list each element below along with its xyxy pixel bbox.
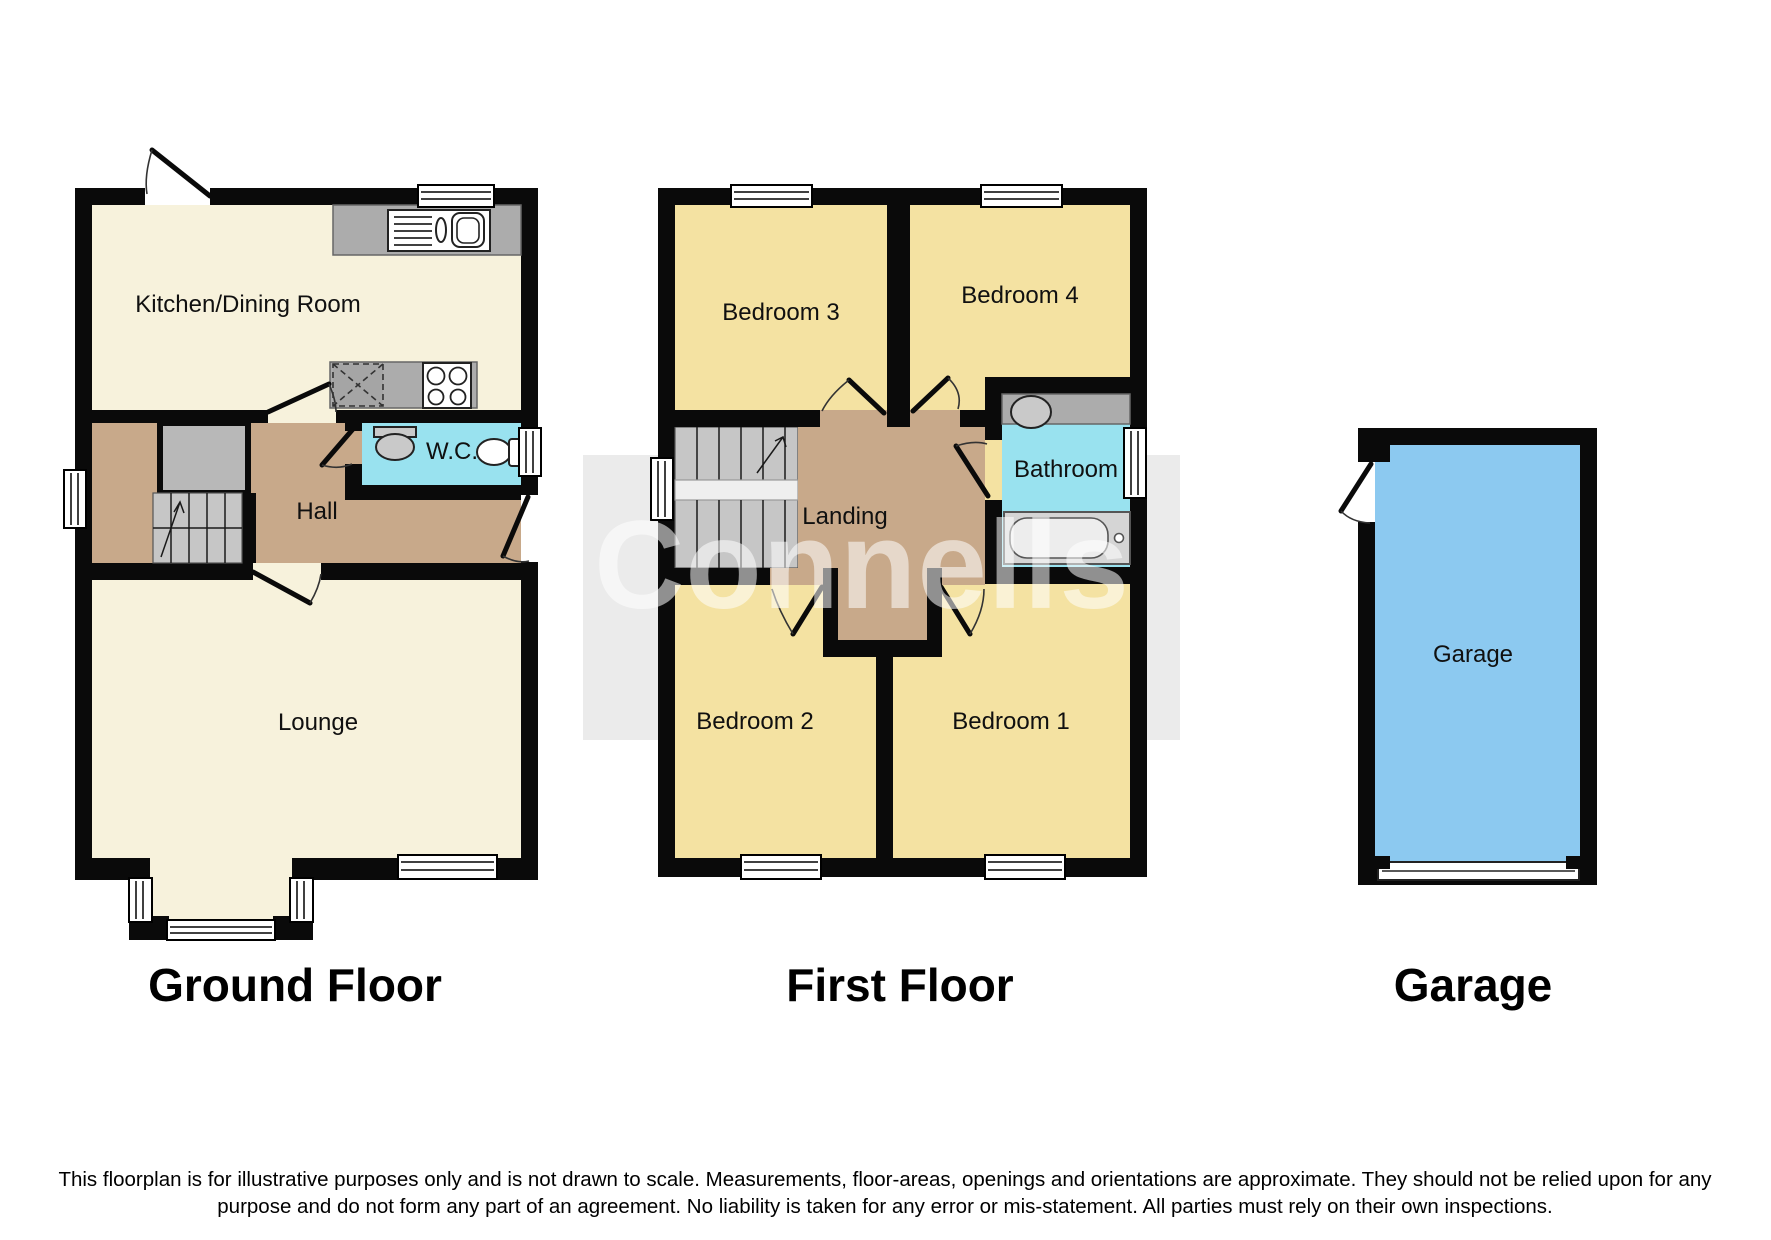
window [741, 855, 821, 879]
landing-floor [910, 410, 960, 427]
ground-floor-plan: Kitchen/Dining Room Hall W.C. Lounge [64, 150, 541, 940]
garage-plan: Garage [1341, 428, 1597, 885]
garage-title: Garage [1394, 959, 1553, 1011]
window [731, 185, 812, 207]
bedroom3-label: Bedroom 3 [722, 299, 839, 326]
ground-floor-title: Ground Floor [148, 959, 442, 1011]
watermark-text: Connells [594, 496, 1130, 635]
window [1124, 428, 1146, 498]
garage-room-label: Garage [1433, 641, 1513, 668]
kitchen-label: Kitchen/Dining Room [135, 291, 360, 318]
ground-stairs [153, 493, 242, 563]
lounge-label: Lounge [278, 709, 358, 736]
bedroom2-label: Bedroom 2 [696, 708, 813, 735]
window [519, 428, 541, 476]
wc-label: W.C. [426, 438, 478, 465]
bathroom-sink [1002, 394, 1130, 428]
window [64, 470, 86, 528]
toilet [477, 439, 523, 466]
kitchen-sink [388, 210, 490, 251]
window [985, 855, 1065, 879]
window [290, 878, 313, 922]
window [398, 855, 497, 879]
bedroom1-label: Bedroom 1 [952, 708, 1069, 735]
first-floor-title: First Floor [786, 959, 1014, 1011]
hall-label: Hall [296, 498, 337, 525]
bathroom-label: Bathroom [1014, 456, 1118, 483]
garage-wall-notch [1358, 445, 1390, 462]
bay-window [129, 858, 313, 940]
hall-cupboard [160, 423, 248, 493]
landing-floor [820, 410, 887, 427]
wc-sink [374, 427, 416, 460]
hob [423, 363, 471, 408]
appliance-space [333, 364, 383, 406]
disclaimer-line-1: This floorplan is for illustrative purpo… [58, 1168, 1712, 1191]
bedroom4-label: Bedroom 4 [961, 282, 1078, 309]
window [981, 185, 1062, 207]
window [167, 920, 275, 940]
disclaimer-line-2: purpose and do not form any part of an a… [217, 1195, 1552, 1218]
window [129, 878, 152, 922]
window [418, 185, 494, 207]
